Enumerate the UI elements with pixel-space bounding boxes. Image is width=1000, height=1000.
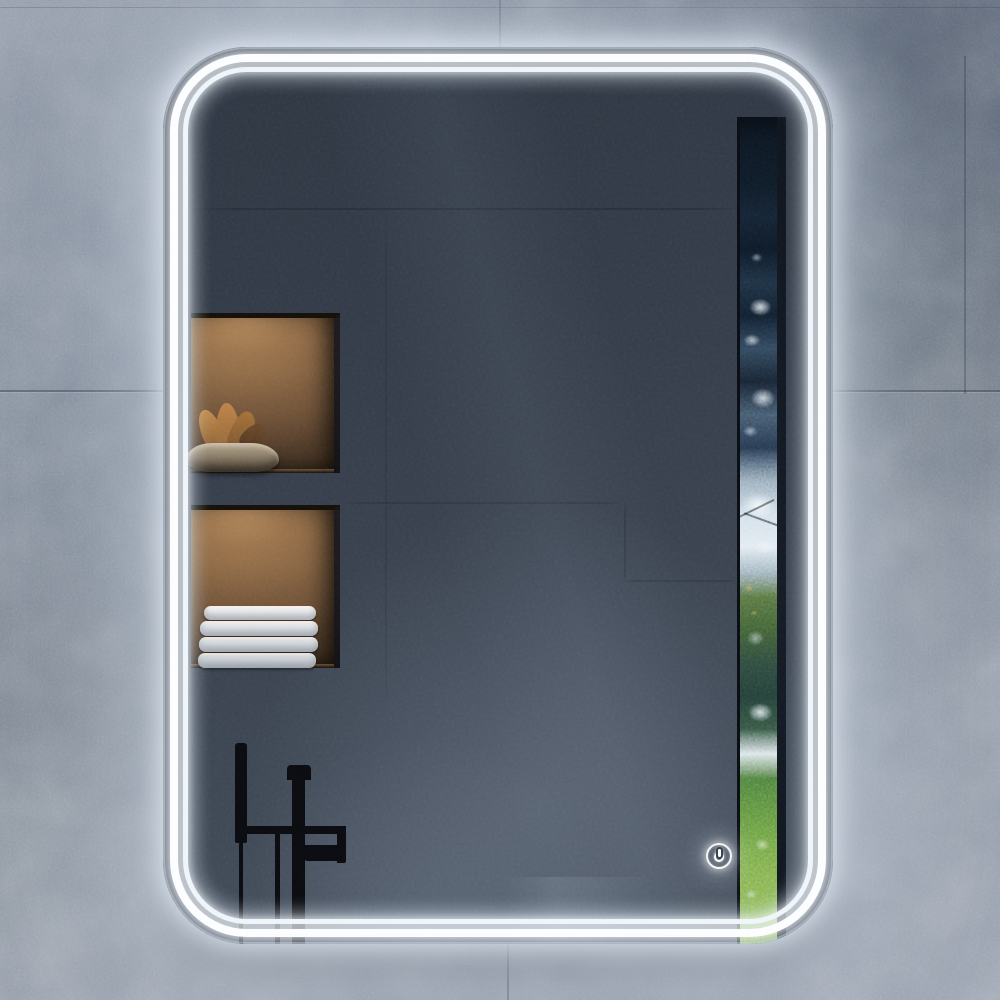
faucet-rod <box>275 833 280 944</box>
faucet-column <box>292 768 305 944</box>
stone-bowl <box>186 443 279 472</box>
touch-power-button[interactable] <box>706 843 732 869</box>
towel <box>204 606 316 620</box>
reflected-tile-seam <box>191 208 741 210</box>
faucet-hose <box>239 841 243 944</box>
towel <box>198 653 316 668</box>
wall-tile-seam <box>964 56 966 394</box>
mirror-edge-bevel <box>163 47 833 944</box>
mirror-grain-texture <box>163 47 833 944</box>
faucet-cap <box>287 765 311 780</box>
led-strip-outer <box>170 54 826 937</box>
led-mirror <box>163 47 833 944</box>
scene <box>0 0 1000 1000</box>
led-glow-band <box>166 50 830 941</box>
window-reflection-strip <box>740 117 777 944</box>
window-strip-edge <box>777 117 786 944</box>
faucet-handle-lower <box>305 845 341 861</box>
power-icon-line <box>718 849 721 857</box>
wall-tile-seam <box>507 942 509 1000</box>
led-strip-inner <box>183 67 813 924</box>
towel <box>200 621 318 636</box>
wall-tile-seam <box>499 0 501 49</box>
glass-light-streak <box>503 877 653 943</box>
reflected-tile-seam <box>625 580 737 582</box>
towel-stack <box>198 605 320 668</box>
towel <box>199 637 318 652</box>
glass-haze <box>163 47 833 944</box>
reflected-tile-seam <box>624 502 626 582</box>
window-light-patches <box>740 117 777 944</box>
reflected-tile-seam <box>385 208 387 708</box>
faucet-spout-arm <box>243 826 346 834</box>
